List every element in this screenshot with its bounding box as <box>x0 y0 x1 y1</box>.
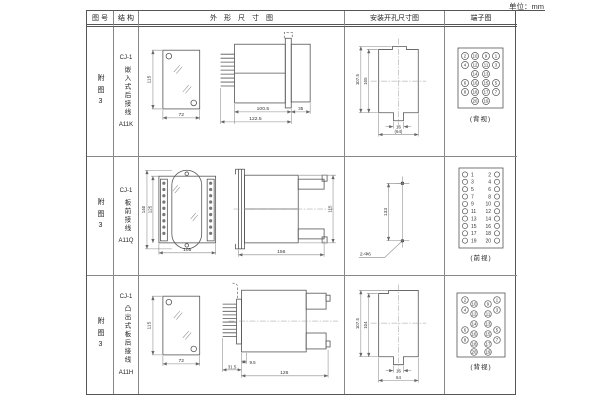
dim-label: 64 <box>396 375 401 380</box>
terminal-number: 7 <box>495 89 498 94</box>
terminal-number: 8 <box>464 89 467 94</box>
terminal-number: 7 <box>471 194 474 200</box>
dim-label: 122.5 <box>249 115 262 121</box>
terminal-pin <box>494 172 499 177</box>
terminal-number: 9 <box>487 302 490 307</box>
dim-label: (64) <box>395 128 403 133</box>
structure-name: 板前接线 <box>121 199 131 233</box>
terminal-pin <box>462 172 467 177</box>
terminal-number: 18 <box>485 231 491 237</box>
terminal-pin <box>494 209 499 214</box>
terminal-pin <box>494 223 499 228</box>
dim-label: 140 <box>141 205 146 213</box>
terminal-number: 12 <box>472 312 477 317</box>
terminal-number: 13 <box>471 216 477 222</box>
structure-code: A11Q <box>119 238 134 244</box>
side-view: 100.5 35 122.5 <box>221 32 311 124</box>
dim-label: 126 <box>280 370 289 376</box>
terminal-number: 3 <box>496 308 499 313</box>
terminal-pin <box>494 201 499 206</box>
hole-spec-label: 2-Φ6 <box>360 252 371 258</box>
terminal-pin <box>494 187 499 192</box>
header-terminal: 端子图 <box>445 11 517 27</box>
handle-hook <box>233 283 238 298</box>
dim-label: 72 <box>179 358 185 364</box>
terminal-number: 20 <box>485 238 491 244</box>
terminal-pin <box>494 216 499 221</box>
dim-label: 115 <box>146 75 152 83</box>
terminal-number: 11 <box>484 62 489 67</box>
dim-label: 9.5 <box>249 360 256 365</box>
terminal-number: 2 <box>464 298 467 303</box>
terminal-diagram-row3: (背视) 2468101214161820911131517191357 <box>445 276 517 394</box>
terminal-number: 4 <box>488 180 491 186</box>
dim-label: 133 <box>383 208 389 216</box>
terminal-pin <box>462 216 467 221</box>
structure-name: 嵌入式后接线 <box>121 66 131 117</box>
terminal-number: 16 <box>485 224 491 230</box>
terminal-pin <box>462 194 467 199</box>
terminal-number: 14 <box>485 216 491 222</box>
terminal-number: 9 <box>485 53 488 58</box>
terminal-number: 5 <box>471 187 474 193</box>
terminal-number: 1 <box>471 172 474 178</box>
terminal-number: 5 <box>495 80 498 85</box>
dim-label: 100.5 <box>257 105 270 111</box>
install-drawing-row3: 107.5 104 16 64 <box>345 276 445 394</box>
terminal-pin <box>462 223 467 228</box>
front-view: 115 72 <box>146 296 199 366</box>
figure-no-cell-row2: 附图3 <box>87 157 114 276</box>
terminal-number: 14 <box>472 322 477 327</box>
terminal-number: 10 <box>473 53 478 58</box>
model-label: CJ-1 <box>120 188 133 194</box>
terminal-number: 14 <box>473 71 478 76</box>
terminal-number: 17 <box>471 231 477 237</box>
terminal-number: 19 <box>471 238 477 244</box>
terminal-pin <box>494 179 499 184</box>
terminal-number: 19 <box>484 98 489 103</box>
terminal-caption: (前视) <box>470 253 491 262</box>
terminal-number: 20 <box>472 350 477 355</box>
install-svg-a11k: 107.5 105 16 (64) <box>345 28 444 156</box>
terminal-number: 11 <box>486 312 491 317</box>
terminal-diagram-row1: (背视) 2468101214161820911131517191357 <box>445 27 517 157</box>
terminal-number: 15 <box>471 224 477 230</box>
dim-label: 115 <box>146 321 152 329</box>
terminal-pin <box>462 179 467 184</box>
terminal-caption: (背视) <box>470 114 491 123</box>
terminal-number: 2 <box>464 53 467 58</box>
structure-code: A11H <box>119 370 134 376</box>
structure-cell-row2: CJ-1 板前接线 A11Q <box>114 157 139 276</box>
header-outline: 外形尺寸图 <box>139 11 345 27</box>
terminal-number: 13 <box>484 71 489 76</box>
terminal-number: 6 <box>464 328 467 333</box>
figure-no-cell-row1: 附图3 <box>87 27 114 157</box>
terminal-svg-a11q: (前视) 1357911131517192468101214161820 <box>445 164 517 268</box>
dim-label: 107.5 <box>355 318 360 330</box>
terminal-svg-a11h: (背视) 2468101214161820911131517191357 <box>445 283 517 387</box>
terminal-number: 17 <box>486 342 491 347</box>
header-install: 安装开孔尺寸图 <box>345 11 445 27</box>
figure-no: 附图3 <box>95 74 105 110</box>
outline-drawing-row3: 115 72 9.5 31.5 126 <box>139 276 345 394</box>
terminal-number: 3 <box>471 180 474 186</box>
terminal-number: 8 <box>488 194 491 200</box>
outline-svg-a11h: 115 72 9.5 31.5 126 <box>139 276 344 394</box>
terminal-number: 1 <box>495 53 498 58</box>
dim-label: 125 <box>148 205 153 213</box>
dim-label: 115 <box>327 205 332 213</box>
dim-label: 105 <box>363 76 368 84</box>
terminal-number: 3 <box>495 62 498 67</box>
structure-cell-row3: CJ-1 凸出式板后接线 A11H <box>114 276 139 394</box>
terminal-number: 7 <box>496 338 499 343</box>
figure-no-cell-row3: 附图3 <box>87 276 114 394</box>
outline-drawing-row1: 115 72 100.5 35 122.5 <box>139 27 345 157</box>
terminal-number: 8 <box>464 338 467 343</box>
install-svg-a11h: 107.5 104 16 64 <box>345 276 444 394</box>
terminal-number: 11 <box>471 209 476 215</box>
install-svg-a11q: 133 2-Φ6 <box>345 157 444 275</box>
terminal-number: 4 <box>464 62 467 67</box>
terminal-number: 13 <box>486 322 491 327</box>
terminal-number: 18 <box>473 89 478 94</box>
dim-label: 156 <box>277 249 286 255</box>
terminal-pin <box>494 231 499 236</box>
outline-svg-a11q: 140 125 105 156 115 <box>139 157 344 275</box>
dim-label: 31.5 <box>228 364 237 369</box>
dim-label: 72 <box>179 111 185 117</box>
terminal-number: 10 <box>472 302 477 307</box>
terminal-caption: (背视) <box>470 362 491 371</box>
dim-label: 104 <box>363 321 368 329</box>
side-view: 9.5 31.5 126 <box>223 283 338 378</box>
terminal-number: 15 <box>484 80 489 85</box>
structure-cell-row1: CJ-1 嵌入式后接线 A11K <box>114 27 139 157</box>
terminal-pin <box>462 209 467 214</box>
terminal-number: 6 <box>464 80 467 85</box>
dim-label: 35 <box>298 105 303 110</box>
outline-drawing-row2: 140 125 105 156 115 <box>139 157 345 276</box>
terminal-number: 6 <box>488 187 491 193</box>
outline-svg-a11k: 115 72 100.5 35 122.5 <box>139 28 344 156</box>
install-drawing-row1: 107.5 105 16 (64) <box>345 27 445 157</box>
terminal-pin <box>494 238 499 243</box>
front-view: 140 125 105 <box>141 170 215 255</box>
terminal-pin <box>494 194 499 199</box>
dim-label: 107.5 <box>355 73 360 85</box>
terminal-number: 17 <box>484 89 489 94</box>
terminal-pin <box>462 187 467 192</box>
terminal-number: 5 <box>496 328 499 333</box>
figure-no: 附图3 <box>95 198 105 234</box>
terminal-number: 10 <box>485 202 491 208</box>
terminal-number: 12 <box>485 209 491 215</box>
terminal-number: 16 <box>472 332 477 337</box>
install-drawing-row2: 133 2-Φ6 <box>345 157 445 276</box>
handle-hook <box>284 32 292 38</box>
terminal-pin <box>462 201 467 206</box>
front-view: 115 72 <box>146 50 199 120</box>
spec-table: 图号 结构 外形尺寸图 安装开孔尺寸图 端子图 附图3 CJ-1 嵌入式后接线 … <box>86 11 516 395</box>
dim-label: 105 <box>183 247 192 253</box>
terminal-number: 19 <box>486 350 491 355</box>
side-view: 156 115 <box>234 169 336 257</box>
terminal-number: 18 <box>472 342 477 347</box>
model-label: CJ-1 <box>120 55 133 61</box>
figure-no: 附图3 <box>95 317 105 353</box>
terminal-svg-a11k: (背视) 2468101214161820911131517191357 <box>445 40 517 144</box>
model-label: CJ-1 <box>120 294 133 300</box>
terminal-number: 4 <box>464 308 467 313</box>
terminal-pin <box>462 231 467 236</box>
dim-label: 16 <box>396 368 401 373</box>
terminal-number: 12 <box>473 62 478 67</box>
structure-name: 凸出式板后接线 <box>121 305 131 365</box>
header-figure-no: 图号 <box>87 11 114 27</box>
terminal-number: 9 <box>471 202 474 208</box>
terminal-number: 20 <box>473 98 478 103</box>
terminal-number: 16 <box>473 80 478 85</box>
terminal-number: 15 <box>486 332 491 337</box>
terminal-diagram-row2: (前视) 1357911131517192468101214161820 <box>445 157 517 276</box>
terminal-number: 2 <box>488 172 491 178</box>
terminal-number: 1 <box>496 298 499 303</box>
terminal-pin <box>462 238 467 243</box>
structure-code: A11K <box>119 122 133 128</box>
header-structure: 结构 <box>114 11 139 27</box>
